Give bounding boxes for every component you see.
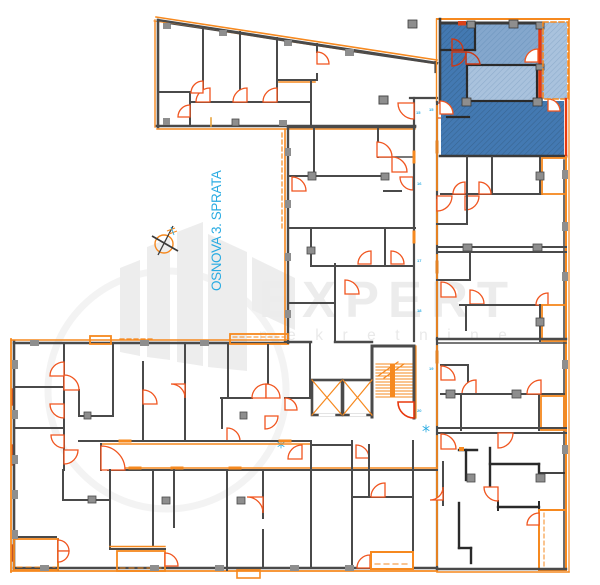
svg-text:18: 18 — [417, 308, 422, 313]
svg-text:20: 20 — [417, 408, 422, 413]
svg-text:OSNOVA 3. SPRATA: OSNOVA 3. SPRATA — [209, 170, 224, 291]
svg-text:17: 17 — [417, 258, 422, 263]
svg-text:15: 15 — [429, 107, 434, 112]
svg-text:19: 19 — [429, 366, 434, 371]
svg-text:16: 16 — [417, 181, 422, 186]
svg-text:15: 15 — [416, 110, 421, 115]
